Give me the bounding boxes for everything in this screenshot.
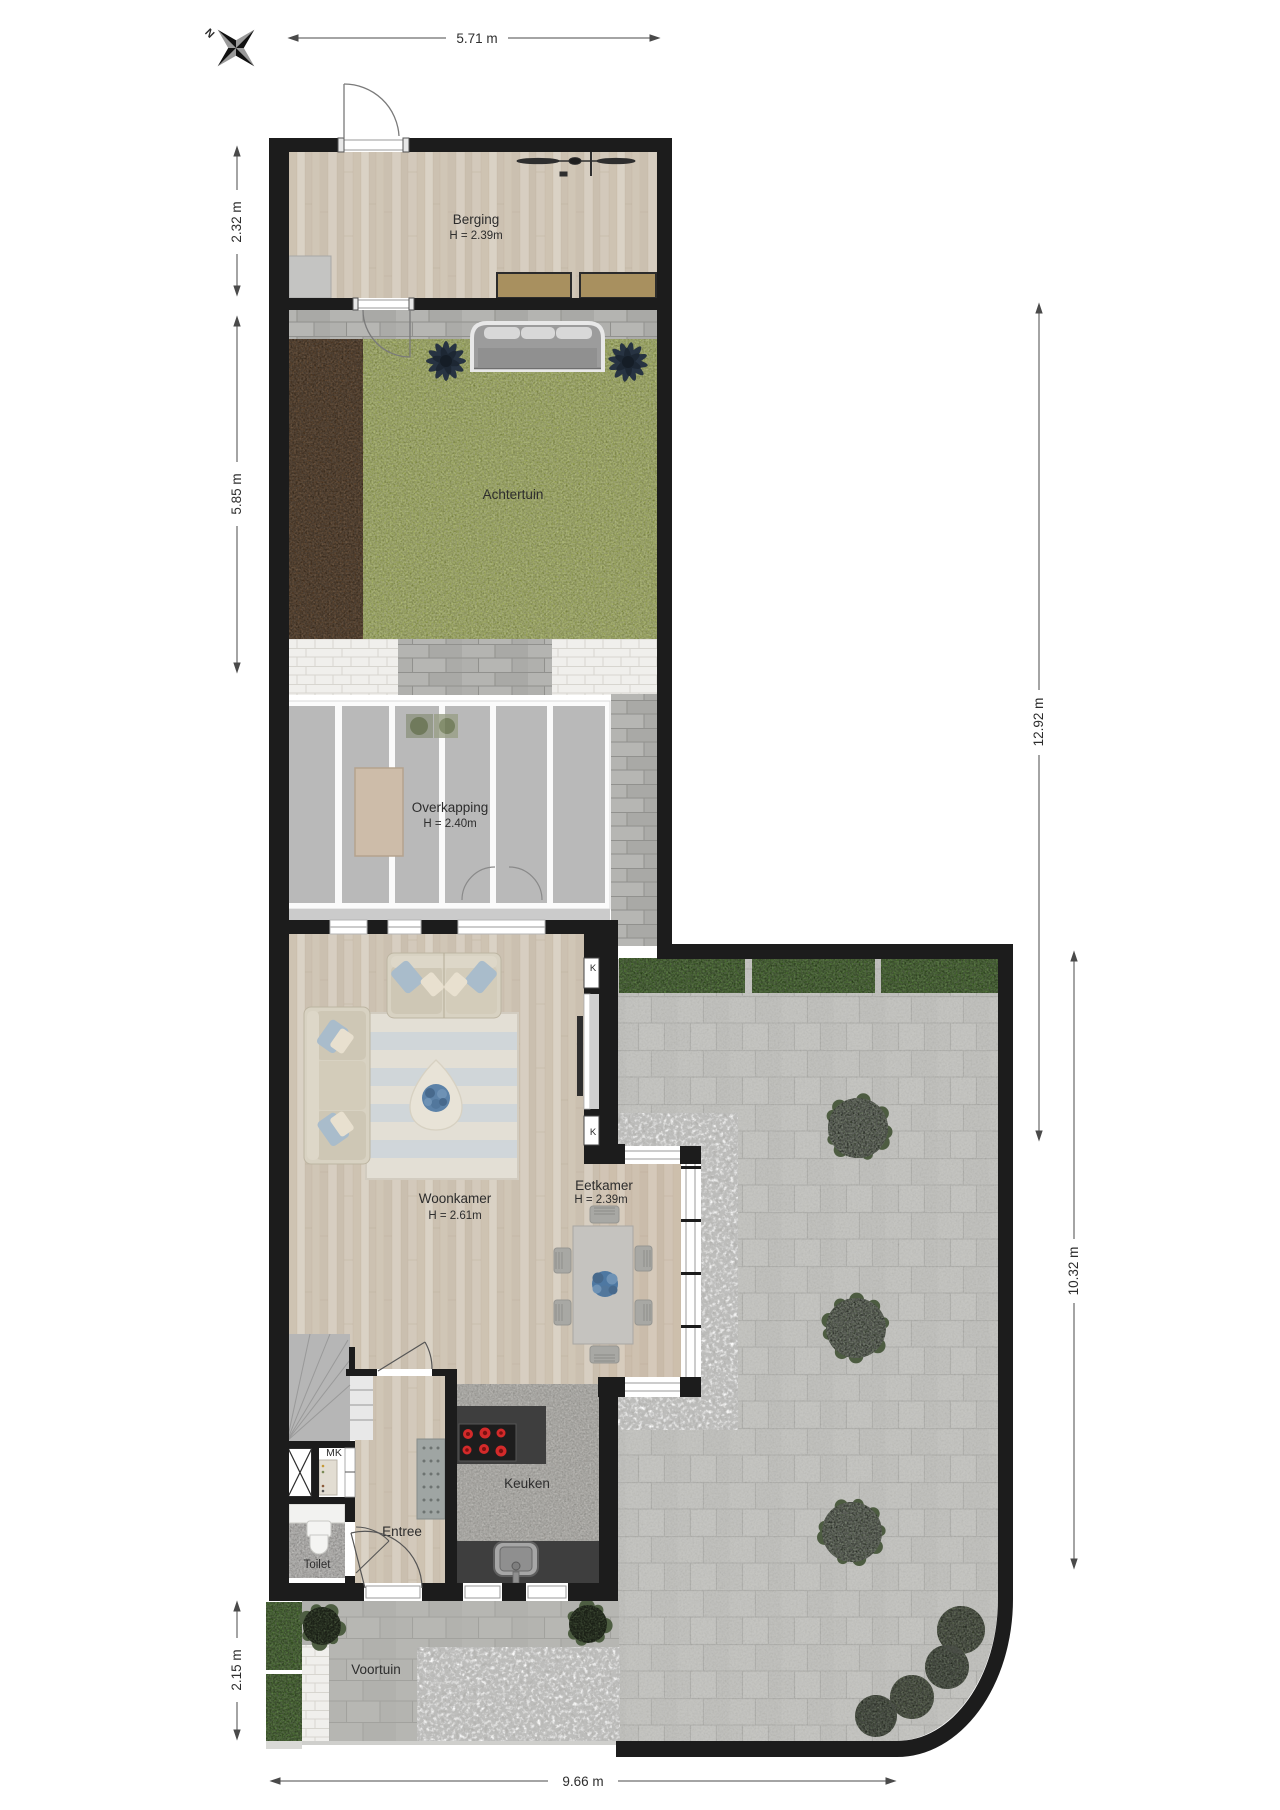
svg-text:10.32 m: 10.32 m [1066,1247,1081,1296]
svg-text:H = 2.40m: H = 2.40m [423,818,476,830]
svg-text:Achtertuin: Achtertuin [483,487,544,502]
svg-text:2.32 m: 2.32 m [229,201,244,242]
svg-text:K: K [590,963,597,974]
svg-text:H = 2.61m: H = 2.61m [428,1210,481,1222]
svg-text:9.66 m: 9.66 m [562,1774,603,1789]
svg-text:MK: MK [326,1447,342,1459]
svg-text:2.15 m: 2.15 m [229,1649,244,1690]
svg-text:Woonkamer: Woonkamer [419,1191,492,1206]
svg-text:5.85 m: 5.85 m [229,473,244,514]
svg-text:Eetkamer: Eetkamer [575,1178,633,1193]
svg-text:Keuken: Keuken [504,1476,550,1491]
svg-text:Voortuin: Voortuin [351,1662,401,1677]
svg-text:H = 2.39m: H = 2.39m [574,1194,627,1206]
svg-text:Berging: Berging [453,212,500,227]
svg-text:H = 2.39m: H = 2.39m [449,230,502,242]
svg-text:K: K [590,1127,597,1138]
svg-text:Toilet: Toilet [304,1559,332,1571]
svg-text:Overkapping: Overkapping [412,800,489,815]
svg-text:12.92 m: 12.92 m [1031,698,1046,747]
svg-text:5.71 m: 5.71 m [456,31,497,46]
